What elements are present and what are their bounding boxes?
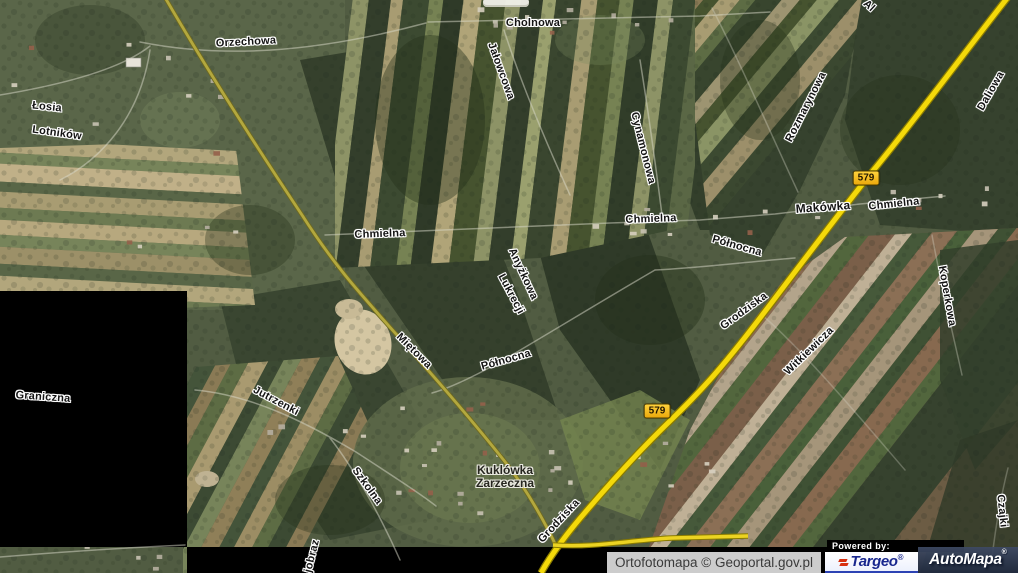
- attribution-text: Ortofotomapa © Geoportal.gov.pl: [615, 555, 813, 570]
- automapa-logo[interactable]: AutoMapa ®: [918, 547, 1018, 573]
- map-attribution: Ortofotomapa © Geoportal.gov.pl: [607, 552, 821, 573]
- street-label: Chmielna: [354, 227, 406, 241]
- place-label: KuklówkaZarzeczna: [476, 464, 534, 490]
- street-label: Chmielna: [625, 212, 677, 226]
- targeo-registered-mark: ®: [898, 553, 904, 562]
- map-viewport[interactable]: OrzechowaCholnowaŁosiaLotnikówJałowcowaC…: [0, 0, 1018, 573]
- clipped-label-fragment: [483, 0, 529, 7]
- road-number-badge: 579: [644, 404, 671, 419]
- targeo-wordmark: Targeo: [851, 553, 898, 570]
- street-label: Cholnowa: [506, 17, 560, 29]
- automapa-wordmark: AutoMapa: [929, 551, 1002, 569]
- targeo-logo[interactable]: Targeo ®: [825, 552, 918, 573]
- automapa-registered-mark: ®: [1002, 549, 1007, 556]
- road-number-badge: 579: [853, 171, 880, 186]
- targeo-red-mark-icon: [839, 563, 848, 566]
